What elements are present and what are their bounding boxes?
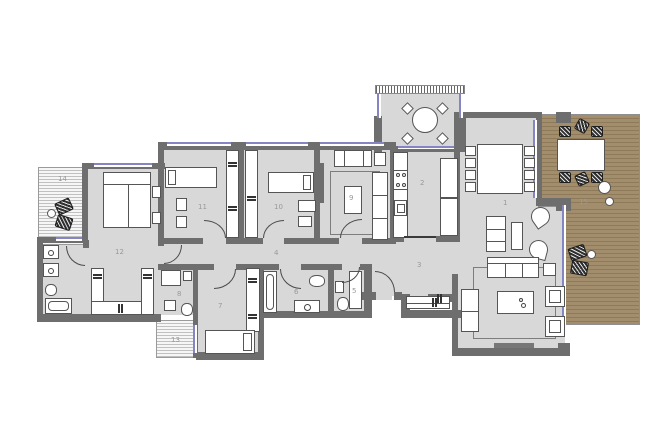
room-label-12: 12 bbox=[115, 249, 124, 256]
wall bbox=[436, 236, 460, 242]
wall bbox=[364, 264, 372, 318]
wall bbox=[401, 310, 462, 318]
shelf-icon bbox=[372, 172, 388, 240]
room-label-4: 4 bbox=[274, 250, 278, 257]
fridge-icon bbox=[440, 158, 458, 198]
outdoor-chair-icon bbox=[591, 126, 603, 137]
outdoor-table-icon bbox=[557, 139, 605, 171]
window bbox=[320, 142, 384, 146]
wardrobe-icon bbox=[245, 150, 258, 238]
single-bed-icon bbox=[268, 172, 314, 193]
armchair-icon bbox=[545, 286, 565, 307]
vanity-sink-icon bbox=[294, 300, 320, 313]
window bbox=[377, 94, 381, 118]
outdoor-chair-icon bbox=[559, 172, 571, 183]
cabinet-icon bbox=[176, 198, 187, 211]
wall-stub bbox=[558, 343, 570, 356]
wardrobe-rail-icon bbox=[248, 314, 257, 319]
room-label-11: 11 bbox=[198, 204, 207, 211]
window bbox=[94, 163, 152, 167]
wardrobe-rail-icon bbox=[143, 274, 152, 279]
room-label-9: 9 bbox=[349, 195, 353, 202]
outdoor-side-table-icon bbox=[587, 250, 596, 259]
radiator-icon bbox=[320, 163, 324, 203]
room-label-5: 5 bbox=[352, 288, 356, 295]
tv-console-icon bbox=[494, 343, 534, 348]
window bbox=[193, 325, 197, 353]
nightstand-icon bbox=[152, 186, 161, 198]
door-leaf bbox=[404, 236, 436, 238]
shower-icon bbox=[161, 270, 181, 286]
radiator-icon bbox=[437, 294, 442, 303]
planter-icon bbox=[598, 181, 611, 194]
toilet-icon bbox=[45, 284, 57, 296]
wardrobe-rail-icon bbox=[248, 278, 257, 283]
double-bed-icon bbox=[103, 172, 151, 228]
window bbox=[562, 205, 566, 325]
chair-icon bbox=[465, 170, 476, 180]
wall bbox=[360, 264, 372, 270]
room-label-14: 14 bbox=[58, 176, 67, 183]
chair-icon bbox=[524, 158, 535, 168]
room-label-6: 6 bbox=[294, 289, 298, 296]
wall bbox=[284, 238, 339, 244]
sofa-icon bbox=[334, 150, 372, 167]
bathtub-icon bbox=[263, 271, 277, 313]
sofa-icon bbox=[487, 257, 539, 278]
wardrobe-rail-icon bbox=[247, 196, 256, 201]
chaise-icon bbox=[461, 289, 479, 332]
toilet-icon bbox=[181, 303, 193, 316]
side-table-icon bbox=[543, 263, 556, 276]
window bbox=[246, 142, 308, 146]
desk-icon bbox=[298, 200, 316, 212]
nightstand-icon bbox=[152, 212, 161, 224]
planter-icon bbox=[605, 197, 614, 206]
outdoor-chair-icon bbox=[559, 126, 571, 137]
coffee-table-icon bbox=[497, 291, 534, 314]
window bbox=[167, 142, 231, 146]
cabinet-icon bbox=[176, 216, 187, 228]
wardrobe-rail-icon bbox=[93, 274, 102, 279]
room-label-1: 1 bbox=[503, 200, 507, 207]
chair-icon bbox=[465, 146, 476, 156]
room-label-13: 13 bbox=[171, 337, 180, 344]
round-table-icon bbox=[412, 107, 438, 133]
wall bbox=[455, 112, 542, 118]
kitchen-counter-icon bbox=[393, 152, 408, 238]
sink-icon bbox=[164, 300, 176, 311]
cabinet-icon bbox=[486, 216, 506, 252]
console-table-icon bbox=[511, 222, 523, 250]
room-label-10: 10 bbox=[274, 204, 283, 211]
wall bbox=[37, 314, 161, 322]
wall bbox=[374, 116, 382, 152]
sink-icon bbox=[43, 263, 59, 277]
sliding-closet-icon bbox=[406, 296, 450, 309]
side-table-icon bbox=[374, 152, 386, 166]
wall bbox=[82, 163, 88, 243]
kitchen-sink-icon bbox=[394, 200, 407, 216]
wall bbox=[301, 264, 342, 270]
room-label-8: 8 bbox=[177, 291, 181, 298]
cabinet-icon bbox=[298, 216, 312, 227]
sink-icon bbox=[43, 245, 59, 259]
stove-icon bbox=[393, 170, 408, 190]
wall bbox=[226, 238, 263, 244]
room-label-2: 2 bbox=[420, 180, 424, 187]
tall-cabinet-icon bbox=[440, 198, 458, 236]
outdoor-lounger-icon bbox=[570, 260, 589, 277]
room-label-7: 7 bbox=[218, 303, 222, 310]
chair-icon bbox=[465, 182, 476, 192]
wardrobe-rail-icon bbox=[228, 162, 237, 167]
window bbox=[398, 146, 454, 149]
toilet-icon bbox=[309, 275, 325, 287]
wall bbox=[328, 266, 334, 313]
wall bbox=[452, 348, 570, 356]
outdoor-side-table-icon bbox=[47, 209, 56, 218]
room-label-3: 3 bbox=[417, 262, 421, 269]
toilet-icon bbox=[337, 297, 349, 311]
single-bed-icon bbox=[165, 167, 217, 188]
window bbox=[459, 94, 463, 118]
chair-icon bbox=[465, 158, 476, 168]
chair-icon bbox=[524, 146, 535, 156]
floor-plan: 1 2 3 4 5 6 7 8 9 10 11 12 13 14 15 bbox=[0, 0, 660, 438]
chair-icon bbox=[524, 182, 535, 192]
single-bed-icon bbox=[205, 330, 255, 354]
top-balcony-railing bbox=[375, 85, 465, 94]
wardrobe-rail-icon bbox=[228, 206, 237, 211]
wall bbox=[163, 238, 203, 244]
cabinet-icon bbox=[183, 271, 192, 281]
window bbox=[56, 237, 82, 241]
chair-icon bbox=[524, 170, 535, 180]
bathtub-icon bbox=[45, 298, 72, 314]
armchair-icon bbox=[545, 316, 565, 337]
wall-stub bbox=[556, 112, 571, 123]
wardrobe-rail-icon bbox=[118, 304, 123, 313]
room-label-15: 15 bbox=[579, 199, 588, 206]
dining-table-icon bbox=[477, 144, 523, 194]
